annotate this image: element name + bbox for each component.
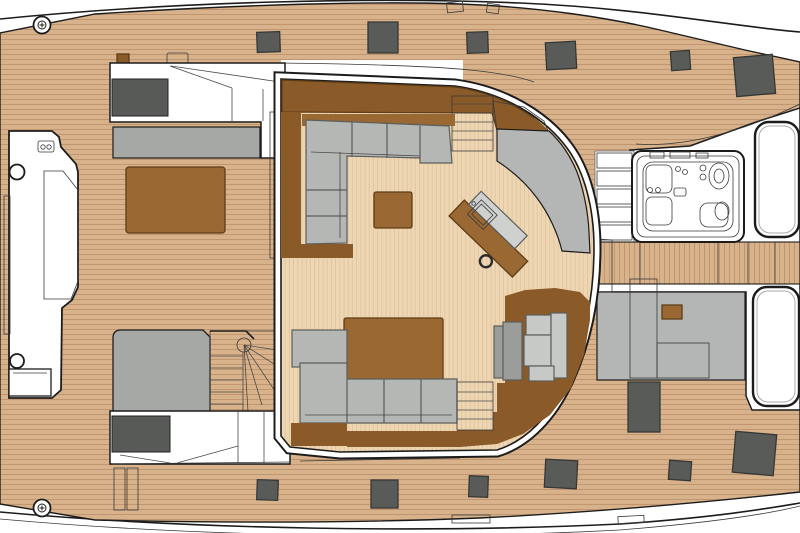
deck-hatch (368, 22, 398, 53)
deck-plan-canvas (0, 0, 800, 533)
salon-wall-left (281, 112, 301, 258)
deck-hatch (544, 459, 577, 489)
helm-seat (494, 313, 567, 381)
sun-pad (126, 167, 225, 233)
salon (281, 79, 594, 452)
catamaran-deck-plan (0, 0, 800, 533)
deck-box (662, 305, 682, 319)
skylight-panel (755, 122, 799, 237)
deck-hatch (467, 32, 489, 54)
deck-hatch (732, 431, 776, 475)
windshield-window (112, 79, 168, 116)
dining-table (344, 318, 443, 380)
deck-hatch (670, 50, 690, 70)
windshield-window (112, 416, 170, 452)
porthole (10, 165, 25, 180)
deck-hatch (628, 382, 660, 432)
porthole (10, 354, 24, 368)
deck-hatch (668, 460, 691, 480)
chaise (292, 330, 347, 367)
skylight-panel (753, 287, 799, 406)
deck-hatch (257, 32, 281, 53)
aft-platform (597, 279, 745, 380)
winch-icon (34, 17, 51, 34)
jacuzzi-steps (595, 151, 634, 243)
deck-hatch (257, 480, 279, 501)
winch-icon (34, 500, 51, 517)
aft-teak-steps (597, 242, 800, 284)
coffee-table (374, 192, 412, 228)
stairwell-block (113, 330, 210, 412)
deck-hatch (733, 54, 775, 96)
side-walkway (113, 127, 260, 158)
deck-hatch (371, 480, 398, 508)
deck-hatch (469, 476, 489, 498)
deck-hatch (545, 41, 576, 70)
jacuzzi (632, 151, 744, 242)
